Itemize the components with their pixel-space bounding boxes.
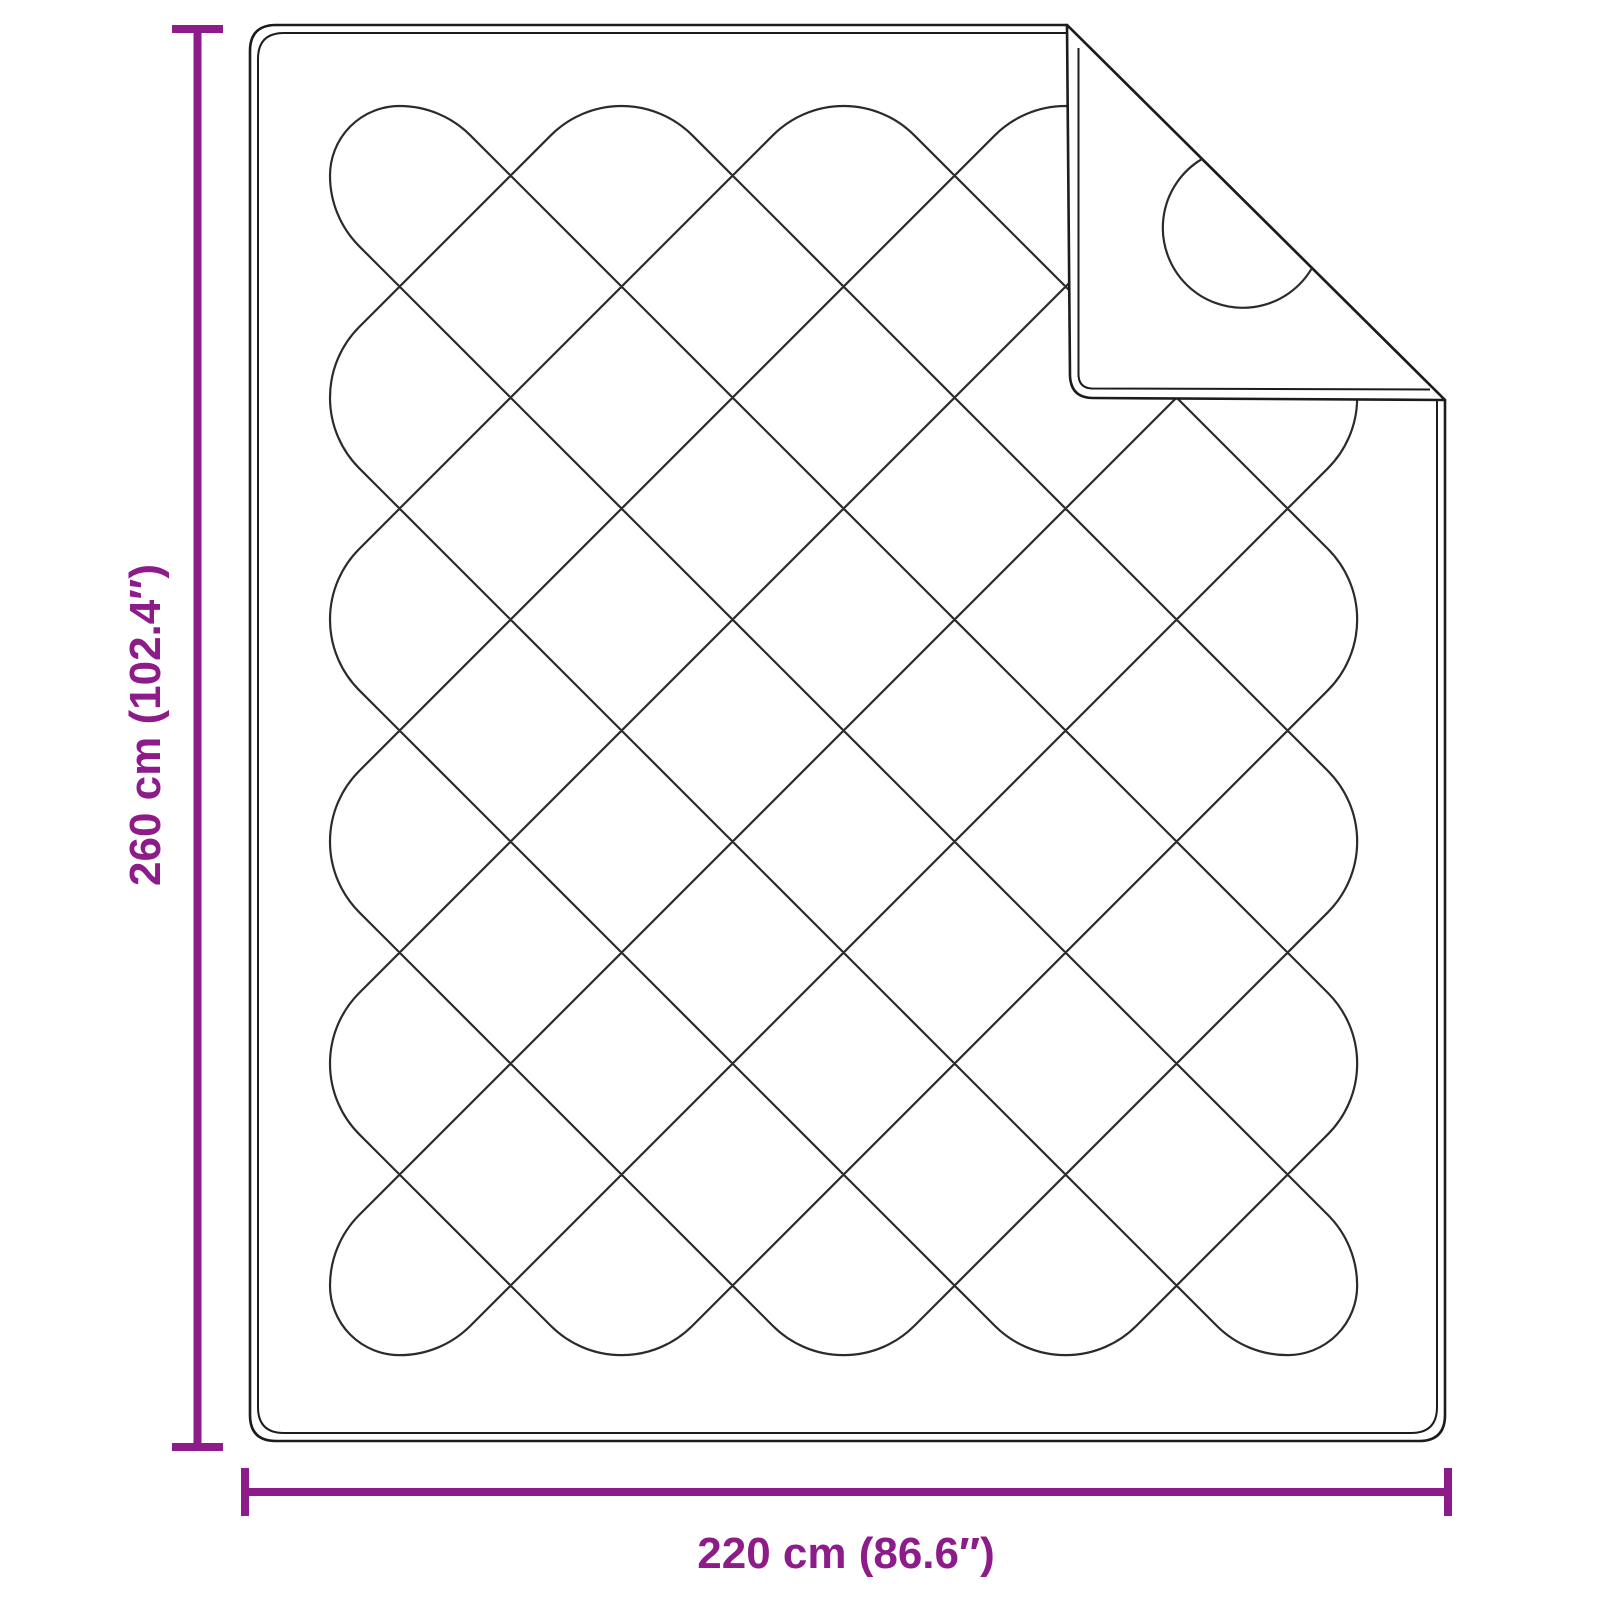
- height-dimension-line: [172, 29, 223, 1447]
- product-dimension-diagram: 260 cm (102.4″) 220 cm (86.6″): [0, 0, 1600, 1600]
- folded-corner: [1067, 25, 1445, 400]
- width-dimension-label: 220 cm (86.6″): [697, 1529, 994, 1578]
- width-dimension: 220 cm (86.6″): [245, 1468, 1448, 1578]
- folded-corner-flap: [1067, 25, 1445, 400]
- height-dimension-label: 260 cm (102.4″): [121, 564, 170, 886]
- height-dimension: 260 cm (102.4″): [121, 29, 223, 1447]
- blanket-dimension-drawing: 260 cm (102.4″) 220 cm (86.6″): [0, 0, 1600, 1600]
- width-dimension-line: [245, 1468, 1448, 1516]
